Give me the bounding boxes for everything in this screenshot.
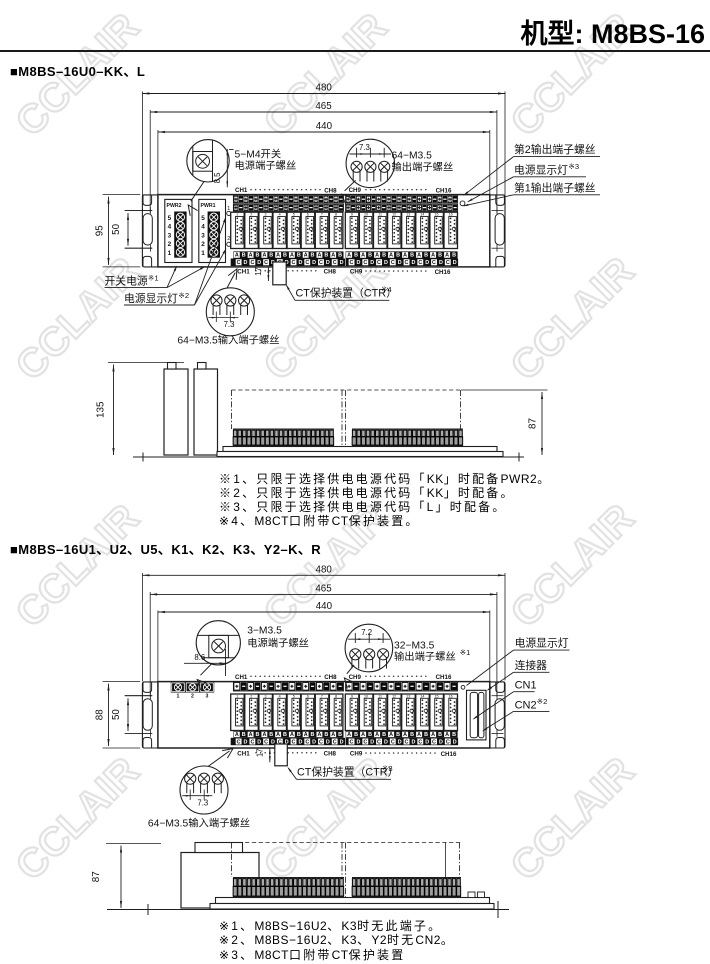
svg-text:D: D bbox=[356, 260, 360, 266]
svg-text:2: 2 bbox=[250, 695, 252, 699]
svg-text:CH9: CH9 bbox=[349, 674, 362, 681]
svg-text:CH1: CH1 bbox=[237, 268, 250, 275]
svg-text:D: D bbox=[244, 260, 248, 266]
svg-text:B: B bbox=[324, 732, 328, 738]
svg-text:D: D bbox=[425, 260, 429, 266]
svg-text:5: 5 bbox=[293, 695, 295, 699]
svg-text:CH9: CH9 bbox=[350, 751, 363, 758]
svg-text:D: D bbox=[340, 739, 344, 745]
svg-text:CH1: CH1 bbox=[235, 674, 248, 681]
svg-text:5−M4开关: 5−M4开关 bbox=[235, 147, 282, 160]
svg-text:A: A bbox=[445, 253, 449, 259]
svg-text:A: A bbox=[304, 732, 308, 738]
svg-text:CH8: CH8 bbox=[324, 751, 337, 758]
svg-text:13: 13 bbox=[406, 213, 410, 217]
svg-text:B: B bbox=[311, 732, 315, 738]
svg-text:8: 8 bbox=[335, 213, 337, 217]
svg-text:C: C bbox=[305, 260, 309, 266]
svg-text:CH16: CH16 bbox=[436, 674, 452, 681]
svg-text:480: 480 bbox=[316, 565, 333, 576]
svg-text:3: 3 bbox=[206, 694, 209, 700]
svg-text:第1输出端子螺丝: 第1输出端子螺丝 bbox=[514, 180, 596, 194]
svg-text:C: C bbox=[446, 739, 450, 745]
svg-text:B: B bbox=[242, 732, 246, 738]
svg-text:9: 9 bbox=[351, 695, 353, 699]
svg-text:C: C bbox=[377, 739, 381, 745]
svg-text:7: 7 bbox=[321, 695, 323, 699]
svg-text:D: D bbox=[384, 739, 388, 745]
svg-text:C: C bbox=[405, 260, 409, 266]
svg-text:连接器: 连接器 bbox=[515, 658, 548, 672]
svg-text:B: B bbox=[410, 253, 414, 259]
svg-text:※1: ※1 bbox=[460, 648, 471, 657]
svg-text:D: D bbox=[326, 739, 330, 745]
svg-text:B: B bbox=[269, 253, 273, 259]
svg-text:D: D bbox=[439, 260, 443, 266]
svg-text:17: 17 bbox=[256, 748, 265, 757]
svg-text:CH16: CH16 bbox=[436, 188, 452, 195]
svg-text:32−M3.5: 32−M3.5 bbox=[394, 640, 435, 651]
svg-text:电源显示灯: 电源显示灯 bbox=[124, 291, 178, 305]
svg-text:电源显示灯: 电源显示灯 bbox=[514, 162, 568, 176]
svg-text:5: 5 bbox=[293, 213, 295, 217]
svg-text:CH9: CH9 bbox=[350, 269, 363, 276]
svg-text:C: C bbox=[292, 260, 296, 266]
svg-text:D: D bbox=[312, 260, 316, 266]
svg-text:A: A bbox=[347, 253, 351, 259]
svg-text:A: A bbox=[403, 732, 407, 738]
svg-text:B: B bbox=[283, 732, 287, 738]
svg-text:D: D bbox=[425, 739, 429, 745]
svg-text:4: 4 bbox=[279, 695, 281, 699]
svg-text:A: A bbox=[431, 732, 435, 738]
svg-text:B: B bbox=[438, 732, 442, 738]
svg-text:50: 50 bbox=[111, 709, 122, 720]
svg-text:C: C bbox=[319, 739, 323, 745]
svg-text:6: 6 bbox=[307, 695, 309, 699]
svg-text:第2输出端子螺丝: 第2输出端子螺丝 bbox=[514, 142, 596, 156]
svg-text:C: C bbox=[250, 739, 254, 745]
svg-text:D: D bbox=[298, 260, 302, 266]
svg-text:7.3: 7.3 bbox=[197, 799, 208, 808]
svg-text:15: 15 bbox=[435, 213, 439, 217]
svg-text:PWR1: PWR1 bbox=[201, 203, 216, 209]
svg-text:※3: ※3 bbox=[382, 764, 393, 773]
svg-text:B: B bbox=[382, 253, 386, 259]
svg-text:A: A bbox=[417, 732, 421, 738]
svg-text:C: C bbox=[391, 260, 395, 266]
svg-text:D: D bbox=[244, 739, 248, 745]
svg-text:4: 4 bbox=[168, 224, 172, 231]
svg-text:CH16: CH16 bbox=[435, 269, 451, 276]
svg-text:C: C bbox=[350, 739, 354, 745]
svg-text:D: D bbox=[356, 739, 360, 745]
svg-text:440: 440 bbox=[316, 601, 333, 612]
svg-text:A: A bbox=[361, 253, 365, 259]
svg-text:465: 465 bbox=[315, 101, 332, 112]
svg-text:A: A bbox=[361, 732, 365, 738]
svg-text:C: C bbox=[363, 739, 367, 745]
svg-text:A: A bbox=[389, 732, 393, 738]
svg-text:PWR2: PWR2 bbox=[167, 203, 182, 209]
svg-text:D: D bbox=[326, 260, 330, 266]
svg-text:8: 8 bbox=[335, 695, 337, 699]
svg-text:A: A bbox=[262, 732, 266, 738]
svg-text:D: D bbox=[398, 739, 402, 745]
svg-text:A: A bbox=[347, 732, 351, 738]
svg-text:C: C bbox=[305, 739, 309, 745]
svg-text:95: 95 bbox=[95, 225, 106, 236]
svg-text:C: C bbox=[377, 260, 381, 266]
svg-text:14: 14 bbox=[420, 695, 424, 699]
svg-text:※2: ※2 bbox=[537, 697, 548, 706]
svg-text:4: 4 bbox=[201, 224, 205, 231]
svg-text:B: B bbox=[283, 253, 287, 259]
svg-text:A: A bbox=[331, 253, 335, 259]
svg-text:A: A bbox=[445, 732, 449, 738]
svg-text:10: 10 bbox=[364, 213, 368, 217]
svg-text:14: 14 bbox=[420, 213, 424, 217]
svg-text:C: C bbox=[446, 260, 450, 266]
svg-text:D: D bbox=[257, 739, 261, 745]
svg-text:CN1: CN1 bbox=[515, 680, 537, 692]
svg-text:电源端子螺丝: 电源端子螺丝 bbox=[235, 159, 297, 172]
svg-text:D: D bbox=[298, 739, 302, 745]
svg-text:A: A bbox=[249, 253, 253, 259]
svg-text:465: 465 bbox=[315, 584, 332, 595]
svg-text:2: 2 bbox=[168, 241, 172, 248]
svg-text:C: C bbox=[264, 260, 268, 266]
svg-text:B: B bbox=[256, 732, 260, 738]
svg-text:1: 1 bbox=[168, 250, 172, 257]
svg-text:10: 10 bbox=[364, 695, 368, 699]
svg-text:B: B bbox=[338, 253, 342, 259]
svg-text:B: B bbox=[368, 253, 372, 259]
svg-text:CH1: CH1 bbox=[235, 187, 248, 194]
svg-text:B: B bbox=[452, 253, 456, 259]
svg-text:C: C bbox=[363, 260, 367, 266]
svg-text:480: 480 bbox=[316, 83, 333, 94]
svg-text:B: B bbox=[424, 253, 428, 259]
svg-text:9: 9 bbox=[351, 213, 353, 217]
svg-text:A: A bbox=[290, 253, 294, 259]
svg-text:开关电源: 开关电源 bbox=[105, 274, 148, 288]
svg-text:16: 16 bbox=[449, 213, 453, 217]
svg-text:64−M3.5输入端子螺丝: 64−M3.5输入端子螺丝 bbox=[148, 816, 250, 829]
svg-text:3−M3.5: 3−M3.5 bbox=[247, 626, 282, 637]
svg-text:135: 135 bbox=[96, 401, 107, 418]
svg-text:CH1: CH1 bbox=[237, 750, 250, 757]
svg-text:电源显示灯: 电源显示灯 bbox=[515, 635, 569, 649]
svg-text:B: B bbox=[338, 732, 342, 738]
svg-text:D: D bbox=[384, 260, 388, 266]
svg-text:D: D bbox=[340, 260, 344, 266]
svg-text:A: A bbox=[235, 253, 239, 259]
svg-text:12: 12 bbox=[392, 213, 396, 217]
svg-text:C: C bbox=[264, 739, 268, 745]
svg-text:3: 3 bbox=[265, 213, 267, 217]
svg-text:※4: ※4 bbox=[381, 285, 392, 294]
svg-text:1: 1 bbox=[236, 695, 238, 699]
svg-text:A: A bbox=[235, 732, 239, 738]
svg-text:CH9: CH9 bbox=[349, 187, 362, 194]
svg-text:A: A bbox=[431, 253, 435, 259]
svg-text:D: D bbox=[398, 260, 402, 266]
svg-text:50: 50 bbox=[111, 223, 122, 234]
svg-text:输出端子螺丝: 输出端子螺丝 bbox=[394, 650, 456, 663]
svg-text:电源端子螺丝: 电源端子螺丝 bbox=[247, 637, 309, 650]
svg-text:CH8: CH8 bbox=[324, 674, 337, 681]
svg-text:CH8: CH8 bbox=[324, 188, 337, 195]
svg-text:5: 5 bbox=[201, 215, 205, 222]
svg-text:B: B bbox=[354, 732, 358, 738]
svg-text:12: 12 bbox=[392, 695, 396, 699]
svg-text:2: 2 bbox=[250, 213, 252, 217]
svg-text:※1: ※1 bbox=[148, 273, 159, 282]
svg-text:C: C bbox=[432, 260, 436, 266]
svg-text:2: 2 bbox=[201, 241, 205, 248]
svg-text:11: 11 bbox=[378, 213, 382, 217]
svg-text:64−M3.5: 64−M3.5 bbox=[392, 151, 433, 162]
svg-text:A: A bbox=[403, 253, 407, 259]
svg-text:A: A bbox=[375, 253, 379, 259]
svg-text:A: A bbox=[417, 253, 421, 259]
svg-text:A: A bbox=[317, 253, 321, 259]
svg-text:A: A bbox=[276, 732, 280, 738]
svg-text:C: C bbox=[250, 260, 254, 266]
svg-text:11: 11 bbox=[378, 695, 382, 699]
svg-text:B: B bbox=[297, 732, 301, 738]
svg-text:17: 17 bbox=[254, 267, 263, 276]
svg-text:C: C bbox=[418, 260, 422, 266]
svg-text:1: 1 bbox=[201, 250, 205, 257]
svg-text:D: D bbox=[257, 260, 261, 266]
svg-text:3: 3 bbox=[265, 695, 267, 699]
svg-text:A: A bbox=[331, 732, 335, 738]
svg-text:D: D bbox=[370, 260, 374, 266]
svg-text:87: 87 bbox=[528, 418, 539, 429]
svg-text:输出端子螺丝: 输出端子螺丝 bbox=[392, 161, 454, 174]
svg-text:B: B bbox=[297, 253, 301, 259]
svg-text:15: 15 bbox=[435, 695, 439, 699]
svg-text:※2: ※2 bbox=[179, 291, 190, 300]
svg-text:A: A bbox=[290, 732, 294, 738]
svg-text:4: 4 bbox=[279, 213, 281, 217]
svg-text:B: B bbox=[452, 732, 456, 738]
svg-text:B: B bbox=[368, 732, 372, 738]
svg-text:B: B bbox=[424, 732, 428, 738]
svg-text:B: B bbox=[324, 253, 328, 259]
svg-text:64−M3.5输入端子螺丝: 64−M3.5输入端子螺丝 bbox=[177, 334, 279, 347]
svg-text:8.5: 8.5 bbox=[213, 172, 222, 184]
svg-text:C: C bbox=[319, 260, 323, 266]
svg-text:C: C bbox=[237, 260, 241, 266]
svg-text:D: D bbox=[411, 260, 415, 266]
svg-text:A: A bbox=[276, 253, 280, 259]
svg-text:B: B bbox=[396, 732, 400, 738]
svg-text:A: A bbox=[375, 732, 379, 738]
svg-text:C: C bbox=[350, 260, 354, 266]
svg-text:B: B bbox=[311, 253, 315, 259]
svg-text:1: 1 bbox=[177, 694, 180, 700]
svg-text:D: D bbox=[411, 739, 415, 745]
svg-text:A: A bbox=[389, 253, 393, 259]
svg-text:7.3: 7.3 bbox=[359, 143, 370, 152]
svg-text:A: A bbox=[317, 732, 321, 738]
svg-text:C: C bbox=[391, 739, 395, 745]
svg-text:A: A bbox=[249, 732, 253, 738]
svg-text:B: B bbox=[256, 253, 260, 259]
svg-text:16: 16 bbox=[449, 695, 453, 699]
svg-text:C: C bbox=[333, 260, 337, 266]
svg-text:C: C bbox=[405, 739, 409, 745]
svg-text:B: B bbox=[396, 253, 400, 259]
svg-text:CN2: CN2 bbox=[515, 700, 537, 712]
svg-text:3: 3 bbox=[201, 232, 205, 239]
svg-text:5: 5 bbox=[168, 215, 172, 222]
svg-text:CH8: CH8 bbox=[324, 269, 337, 276]
svg-text:D: D bbox=[370, 739, 374, 745]
svg-text:88: 88 bbox=[95, 709, 106, 720]
svg-text:B: B bbox=[382, 732, 386, 738]
svg-text:1: 1 bbox=[236, 213, 238, 217]
svg-text:D: D bbox=[453, 739, 457, 745]
svg-text:D: D bbox=[312, 739, 316, 745]
svg-text:6: 6 bbox=[307, 213, 309, 217]
svg-text:7.2: 7.2 bbox=[361, 628, 372, 637]
svg-text:D: D bbox=[453, 260, 457, 266]
svg-text:3: 3 bbox=[168, 232, 172, 239]
svg-text:7: 7 bbox=[321, 213, 323, 217]
svg-text:13: 13 bbox=[406, 695, 410, 699]
svg-text:C: C bbox=[432, 739, 436, 745]
svg-text:2: 2 bbox=[191, 694, 194, 700]
svg-text:A: A bbox=[262, 253, 266, 259]
svg-text:440: 440 bbox=[316, 121, 333, 132]
svg-text:B: B bbox=[269, 732, 273, 738]
svg-text:B: B bbox=[242, 253, 246, 259]
svg-text:C: C bbox=[333, 739, 337, 745]
svg-text:B: B bbox=[410, 732, 414, 738]
svg-text:8.6: 8.6 bbox=[194, 653, 205, 662]
svg-text:B: B bbox=[354, 253, 358, 259]
svg-text:7.3: 7.3 bbox=[224, 320, 235, 329]
svg-text:※3: ※3 bbox=[569, 162, 580, 171]
svg-text:87: 87 bbox=[91, 871, 102, 882]
svg-text:C: C bbox=[237, 739, 241, 745]
svg-text:C: C bbox=[292, 739, 296, 745]
svg-text:A: A bbox=[304, 253, 308, 259]
svg-text:B: B bbox=[438, 253, 442, 259]
svg-text:C: C bbox=[418, 739, 422, 745]
svg-text:D: D bbox=[439, 739, 443, 745]
svg-text:CH16: CH16 bbox=[441, 751, 457, 758]
svg-text:2: 2 bbox=[227, 236, 230, 242]
